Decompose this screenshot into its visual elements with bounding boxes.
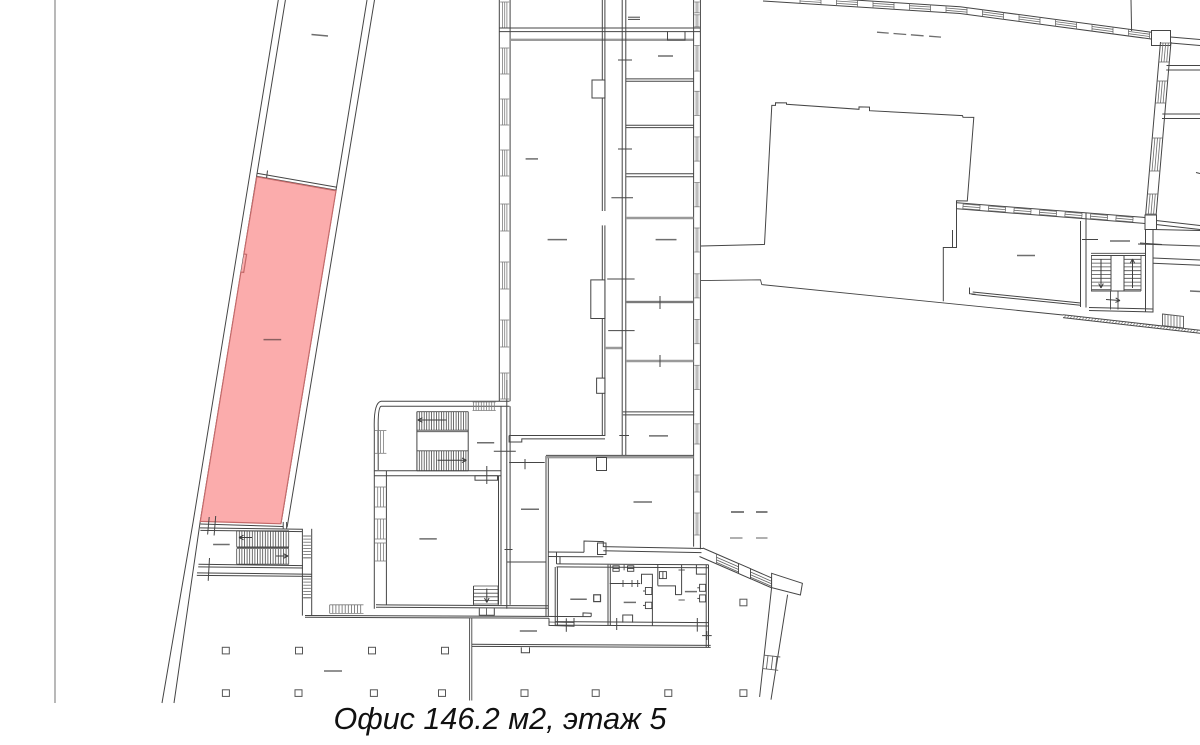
svg-text:Офис 146.2 м2, этаж 5: Офис 146.2 м2, этаж 5 <box>334 702 668 736</box>
